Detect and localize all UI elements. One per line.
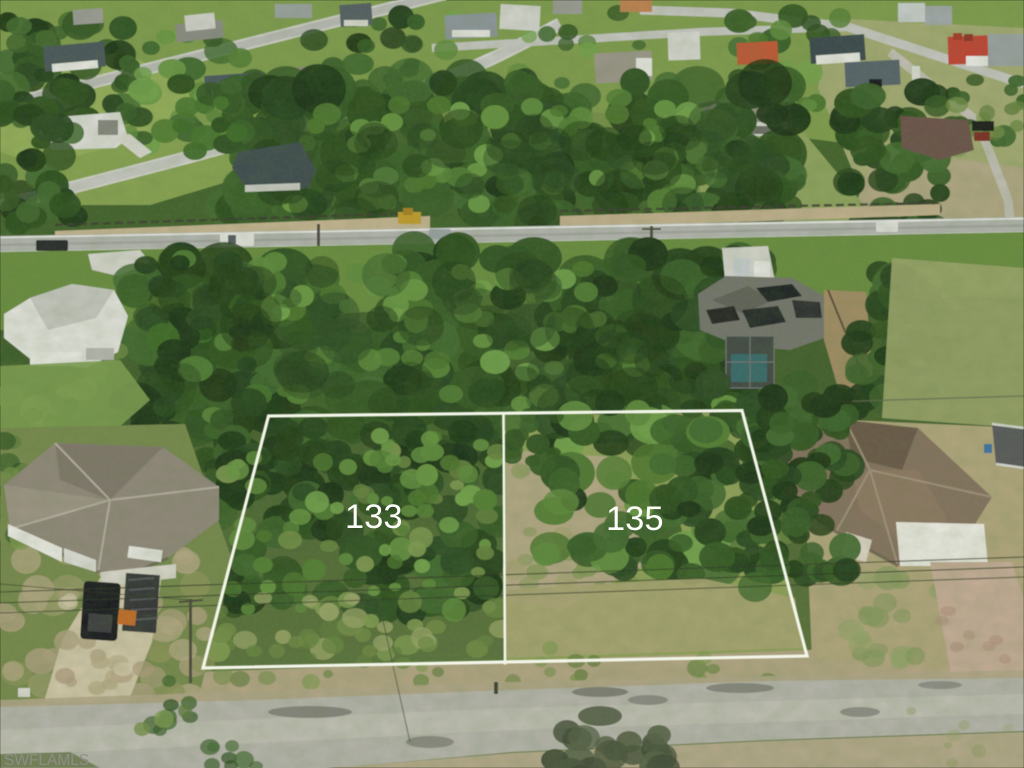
svg-text:133: 133 bbox=[345, 498, 403, 536]
svg-text:SWFLAMLS: SWFLAMLS bbox=[4, 752, 89, 768]
svg-text:135: 135 bbox=[606, 500, 664, 538]
